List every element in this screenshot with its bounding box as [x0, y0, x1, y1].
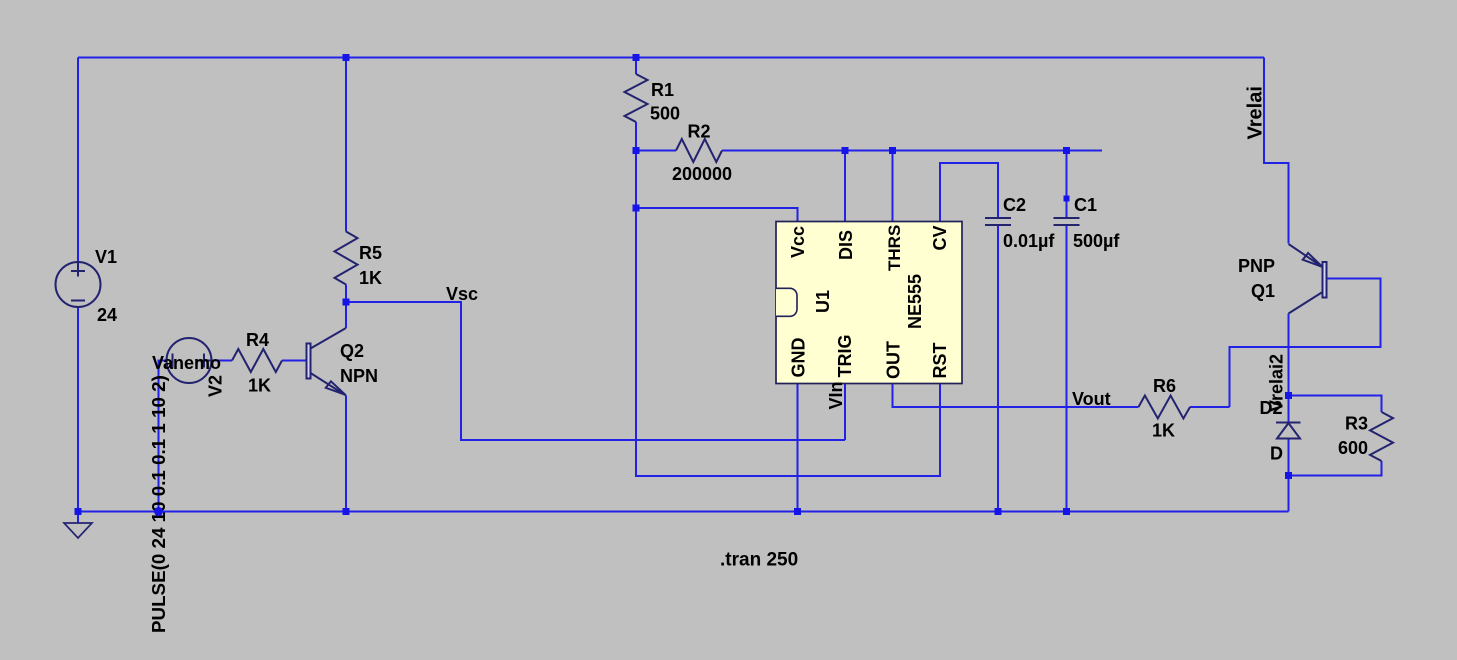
svg-text:.tran 250: .tran 250: [720, 550, 798, 571]
svg-text:RST: RST: [930, 342, 950, 378]
svg-text:Vsc: Vsc: [446, 284, 478, 304]
svg-text:1K: 1K: [359, 268, 382, 288]
svg-text:NPN: NPN: [340, 366, 378, 386]
svg-text:R1: R1: [651, 80, 674, 100]
svg-text:V2: V2: [206, 375, 226, 397]
svg-text:Vout: Vout: [1072, 389, 1111, 409]
svg-text:R2: R2: [688, 122, 711, 142]
svg-text:DIS: DIS: [836, 230, 856, 260]
svg-text:R4: R4: [246, 330, 269, 350]
svg-text:C1: C1: [1074, 195, 1097, 215]
svg-text:1K: 1K: [1152, 421, 1175, 441]
svg-text:Vrelai: Vrelai: [1245, 86, 1267, 139]
svg-text:Q2: Q2: [340, 341, 364, 361]
svg-text:GND: GND: [789, 338, 809, 378]
svg-text:V1: V1: [95, 247, 117, 267]
svg-text:Vanemo: Vanemo: [152, 353, 221, 373]
svg-text:R5: R5: [359, 243, 382, 263]
svg-text:500µf: 500µf: [1073, 231, 1120, 251]
svg-text:0.01µf: 0.01µf: [1003, 231, 1055, 251]
svg-text:VIn: VIn: [826, 381, 846, 409]
svg-text:500: 500: [650, 104, 680, 124]
svg-text:PNP: PNP: [1238, 256, 1275, 276]
svg-text:OUT: OUT: [884, 341, 904, 379]
svg-text:Q1: Q1: [1251, 281, 1275, 301]
svg-text:1K: 1K: [248, 376, 271, 396]
svg-text:U1: U1: [813, 290, 833, 313]
svg-text:Vrelai2: Vrelai2: [1267, 354, 1287, 412]
svg-text:24: 24: [97, 305, 117, 325]
svg-text:D: D: [1270, 444, 1283, 464]
svg-text:THRS: THRS: [885, 225, 904, 271]
svg-text:R3: R3: [1345, 414, 1368, 434]
svg-text:CV: CV: [930, 225, 950, 250]
svg-text:NE555: NE555: [905, 274, 925, 329]
svg-text:C2: C2: [1003, 195, 1026, 215]
svg-text:PULSE(0 24 10 0.1 0.1 1 10 2): PULSE(0 24 10 0.1 0.1 1 10 2): [148, 375, 169, 633]
svg-text:Vcc: Vcc: [788, 226, 808, 258]
svg-text:600: 600: [1338, 438, 1368, 458]
svg-text:TRIG: TRIG: [835, 335, 855, 378]
svg-text:200000: 200000: [672, 164, 732, 184]
svg-text:R6: R6: [1153, 376, 1176, 396]
